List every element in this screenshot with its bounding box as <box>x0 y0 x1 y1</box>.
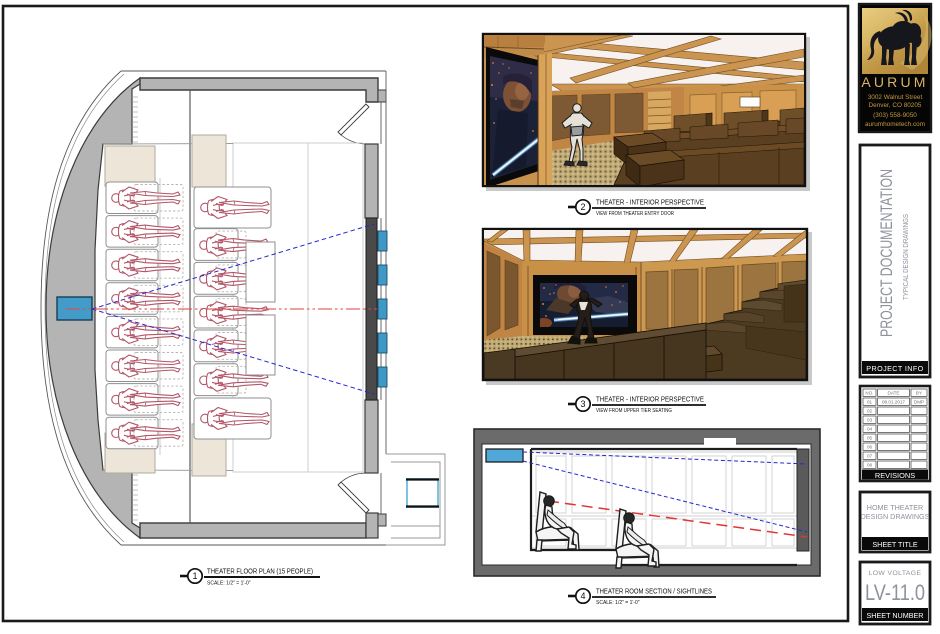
svg-text:DATE: DATE <box>888 391 900 396</box>
svg-text:PROJECT DOCUMENTATION: PROJECT DOCUMENTATION <box>878 169 896 337</box>
svg-text:2: 2 <box>580 202 585 212</box>
svg-text:aurumhometech.com: aurumhometech.com <box>865 121 925 128</box>
svg-text:THEATER - INTERIOR PERSPECTIVE: THEATER - INTERIOR PERSPECTIVE <box>596 198 704 207</box>
svg-text:03: 03 <box>867 418 873 423</box>
svg-text:THEATER FLOOR PLAN (15 PEOPLE): THEATER FLOOR PLAN (15 PEOPLE) <box>207 567 313 576</box>
svg-text:VIEW FROM THEATER ENTRY DOOR: VIEW FROM THEATER ENTRY DOOR <box>596 211 674 217</box>
svg-text:PROJECT INFO: PROJECT INFO <box>866 364 923 373</box>
svg-text:AURUM: AURUM <box>861 74 928 90</box>
svg-text:3: 3 <box>580 399 585 409</box>
svg-text:07: 07 <box>867 454 873 459</box>
svg-text:3002 Walnut Street: 3002 Walnut Street <box>868 94 923 101</box>
svg-text:06: 06 <box>867 445 873 450</box>
svg-text:TYPICAL DESIGN DRAWINGS: TYPICAL DESIGN DRAWINGS <box>901 214 910 300</box>
svg-text:SCALE: 1/2" = 1'-0": SCALE: 1/2" = 1'-0" <box>596 600 640 606</box>
svg-text:04: 04 <box>867 427 873 432</box>
svg-text:SHEET NUMBER: SHEET NUMBER <box>867 611 924 620</box>
svg-text:DESIGN DRAWINGS: DESIGN DRAWINGS <box>861 512 930 521</box>
svg-text:THEATER ROOM SECTION / SIGHTLI: THEATER ROOM SECTION / SIGHTLINES <box>596 587 712 596</box>
svg-text:REVISIONS: REVISIONS <box>875 471 915 480</box>
svg-text:THEATER - INTERIOR PERSPECTIVE: THEATER - INTERIOR PERSPECTIVE <box>596 395 704 404</box>
svg-text:02: 02 <box>867 409 873 414</box>
svg-text:1: 1 <box>192 571 197 581</box>
svg-text:LOW VOLTAGE: LOW VOLTAGE <box>869 570 922 577</box>
svg-text:08: 08 <box>867 463 873 468</box>
svg-text:VIEW FROM UPPER TIER SEATING: VIEW FROM UPPER TIER SEATING <box>596 408 672 414</box>
svg-text:05: 05 <box>867 436 873 441</box>
svg-text:SHEET TITLE: SHEET TITLE <box>872 540 917 549</box>
svg-text:BY: BY <box>916 391 922 396</box>
svg-text:SCALE: 1/2" = 1'-0": SCALE: 1/2" = 1'-0" <box>207 581 251 587</box>
svg-text:01: 01 <box>867 400 873 405</box>
svg-text:(303) 558-9050: (303) 558-9050 <box>873 112 917 119</box>
svg-text:LV-11.0: LV-11.0 <box>865 580 925 605</box>
svg-text:4: 4 <box>580 591 585 601</box>
svg-text:Denver, CO 80205: Denver, CO 80205 <box>869 102 922 109</box>
svg-text:HOME THEATER: HOME THEATER <box>867 503 923 512</box>
svg-text:NO.: NO. <box>865 391 873 396</box>
svg-text:08.01.2017: 08.01.2017 <box>882 400 905 405</box>
svg-text:DMP: DMP <box>914 400 924 405</box>
